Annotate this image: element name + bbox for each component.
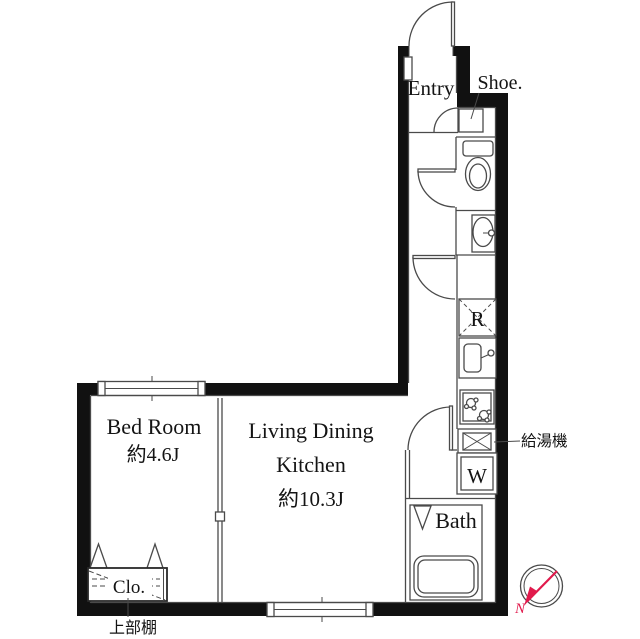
bath-label: Bath [435, 508, 477, 533]
shoe-cabinet [459, 109, 483, 132]
partition-junction [216, 512, 225, 521]
bathtub-icon [414, 556, 478, 597]
refrigerator-label: R [470, 307, 484, 331]
compass-north-label: N [514, 601, 526, 617]
ldk-window-icon [267, 597, 373, 622]
bedroom-size-label: 約4.6J [127, 443, 180, 466]
upper-shelf-label: 上部棚 [109, 619, 157, 637]
water-heater-label: 給湯機 [521, 432, 568, 450]
floor-plan-canvas: N Entry Shoe. Bed Room 約4.6J Living Dini… [0, 0, 640, 639]
north-needle-icon [524, 587, 537, 607]
entry-label: Entry [408, 76, 455, 100]
closet-folding-door-icon [90, 544, 107, 568]
wall [398, 46, 409, 56]
washbasin-icon [472, 215, 495, 252]
toilet-icon [463, 141, 493, 191]
wall [398, 46, 408, 395]
wall [373, 603, 508, 616]
bedroom-partition [216, 398, 225, 602]
wall [77, 383, 98, 395]
ldk-label-line1: Living Dining [248, 418, 373, 443]
toilet-door-icon [418, 169, 455, 207]
wall [495, 93, 508, 616]
closet-label: Clo. [113, 577, 145, 598]
stove-icon [460, 390, 494, 424]
bedroom-window-icon [98, 376, 205, 401]
entry-door-icon [409, 2, 455, 46]
wall [205, 383, 408, 395]
bedroom-label: Bed Room [107, 414, 202, 439]
ldk-label-line2: Kitchen [276, 452, 346, 477]
shoe-area-door-icon [434, 108, 458, 132]
closet-folding-door-icon [147, 544, 163, 568]
compass-icon: N [514, 565, 563, 617]
floor-plan: N Entry Shoe. Bed Room 約4.6J Living Dini… [0, 0, 640, 639]
hall-door-icon [413, 256, 455, 300]
washroom-door-icon [408, 406, 453, 450]
ldk-size-label: 約10.3J [278, 487, 344, 511]
shoe-label: Shoe. [478, 72, 523, 94]
washer-label: W [467, 464, 487, 488]
kitchen-sink-icon [459, 338, 496, 378]
water-heater-icon [458, 429, 520, 453]
wall [77, 603, 267, 616]
